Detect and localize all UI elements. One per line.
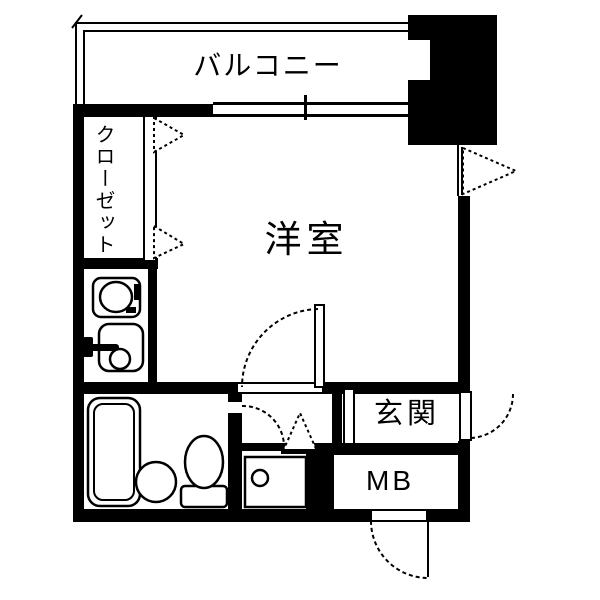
bathroom-door-swing-arc — [242, 406, 284, 445]
faucet-arm — [89, 344, 119, 351]
room-door-swing-arc — [242, 309, 318, 387]
floor-plan: バルコニー クローゼット 洋室 玄関 MB — [0, 0, 600, 600]
bathtub-inner — [94, 404, 134, 500]
corridor-triangle-base — [281, 449, 319, 454]
corridor-triangle-icon — [283, 413, 317, 451]
balcony-label: バルコニー — [188, 51, 348, 82]
meter-box-label: MB — [354, 466, 426, 497]
toilet-icon — [185, 436, 223, 488]
washing-machine-drain — [252, 470, 268, 486]
entrance-label: 玄関 — [366, 399, 448, 431]
closet-fold-triangle-top — [154, 118, 184, 152]
stove-handle — [134, 284, 139, 300]
window-triangle-icon — [463, 148, 516, 194]
mb-door-swing-arc — [371, 521, 428, 578]
washbasin-icon — [136, 462, 176, 502]
closet-label: クローゼット — [92, 116, 114, 264]
entrance-door-swing-arc — [469, 394, 513, 438]
fixtures-layer — [0, 0, 600, 600]
sink-drain — [110, 349, 130, 369]
room-door-leaf — [315, 305, 324, 387]
closet-fold-triangle-bottom — [154, 226, 184, 258]
balcony-corner-line — [72, 15, 82, 28]
stove-knob — [126, 307, 136, 313]
western-room-label: 洋室 — [254, 220, 359, 261]
